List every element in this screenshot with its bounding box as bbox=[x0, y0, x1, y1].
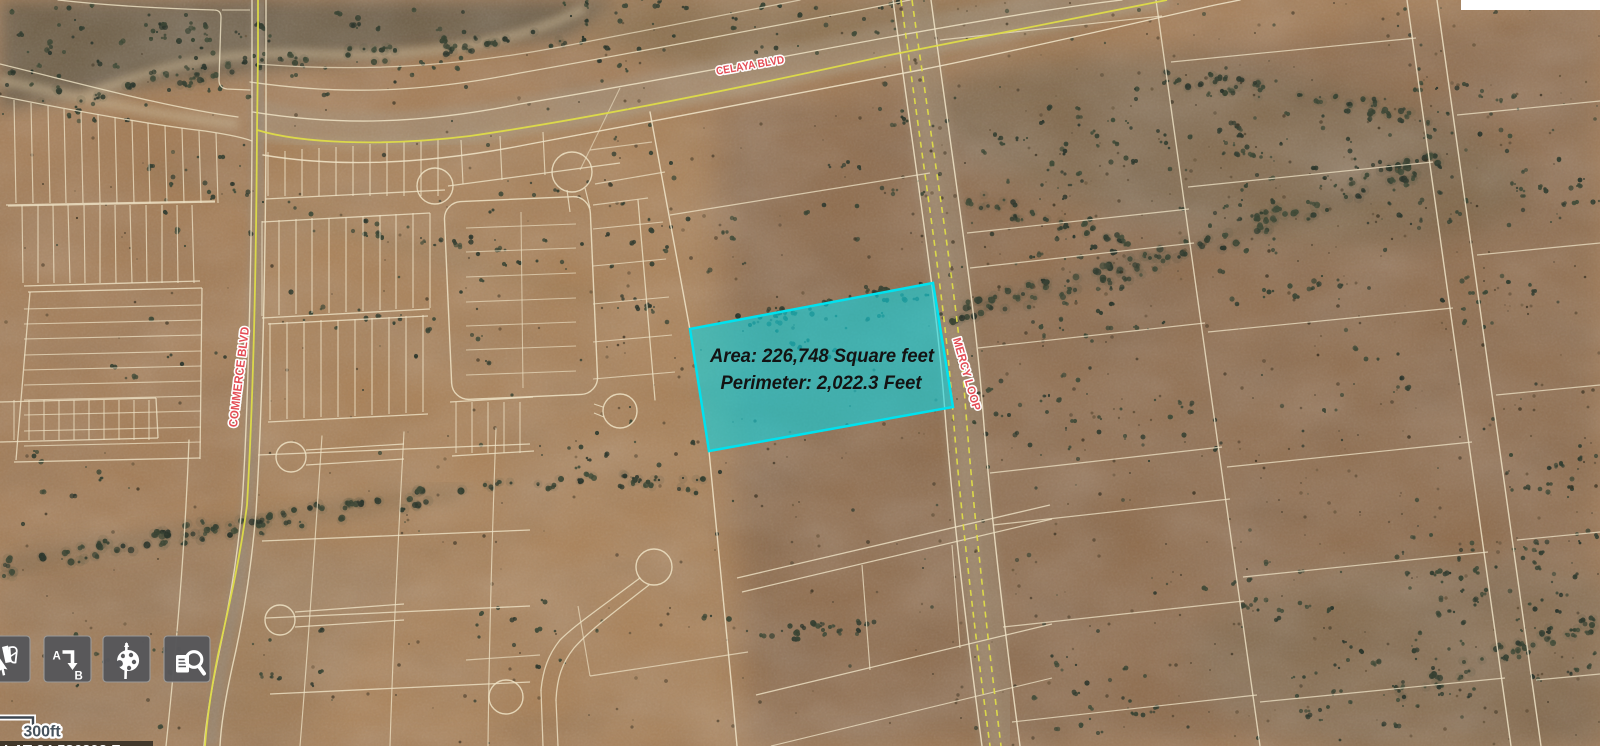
svg-text:Area: 226,748 Square feet: Area: 226,748 Square feet bbox=[709, 345, 935, 367]
svg-text:300ft: 300ft bbox=[23, 724, 61, 741]
svg-text:LAT 34.586202 F: LAT 34.586202 F bbox=[4, 742, 120, 746]
svg-text:B: B bbox=[75, 671, 83, 683]
svg-text:Perimeter: 2,022.3 Feet: Perimeter: 2,022.3 Feet bbox=[721, 372, 923, 394]
svg-text:A: A bbox=[53, 651, 61, 663]
